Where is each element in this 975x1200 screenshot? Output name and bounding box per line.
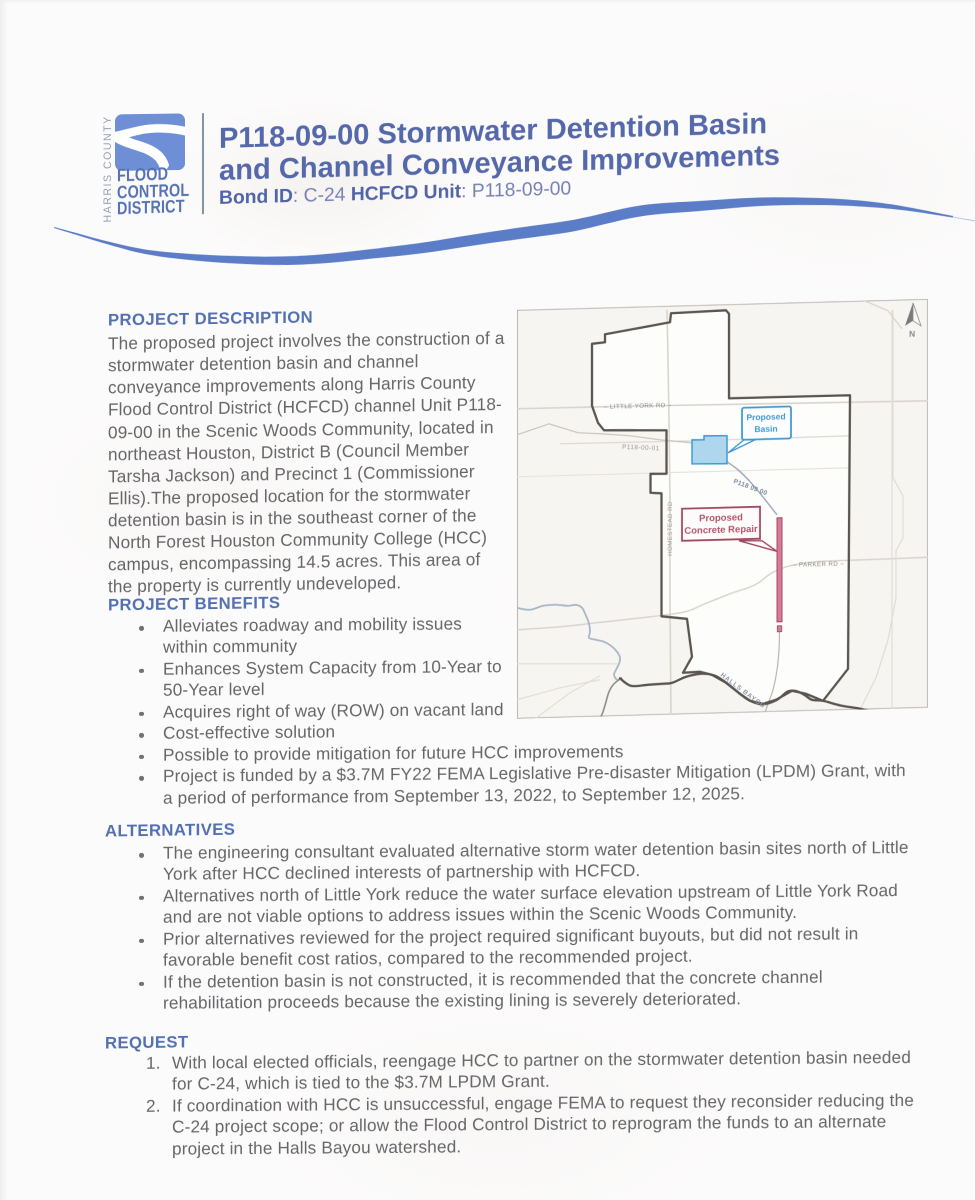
svg-text:N: N bbox=[909, 329, 915, 339]
svg-text:Concrete Repair: Concrete Repair bbox=[684, 524, 758, 537]
svg-text:HOMESTEAD RD: HOMESTEAD RD bbox=[667, 501, 674, 556]
svg-text:Proposed: Proposed bbox=[746, 411, 785, 422]
svg-text:Proposed: Proposed bbox=[699, 512, 743, 524]
svg-text:Basin: Basin bbox=[754, 424, 777, 435]
